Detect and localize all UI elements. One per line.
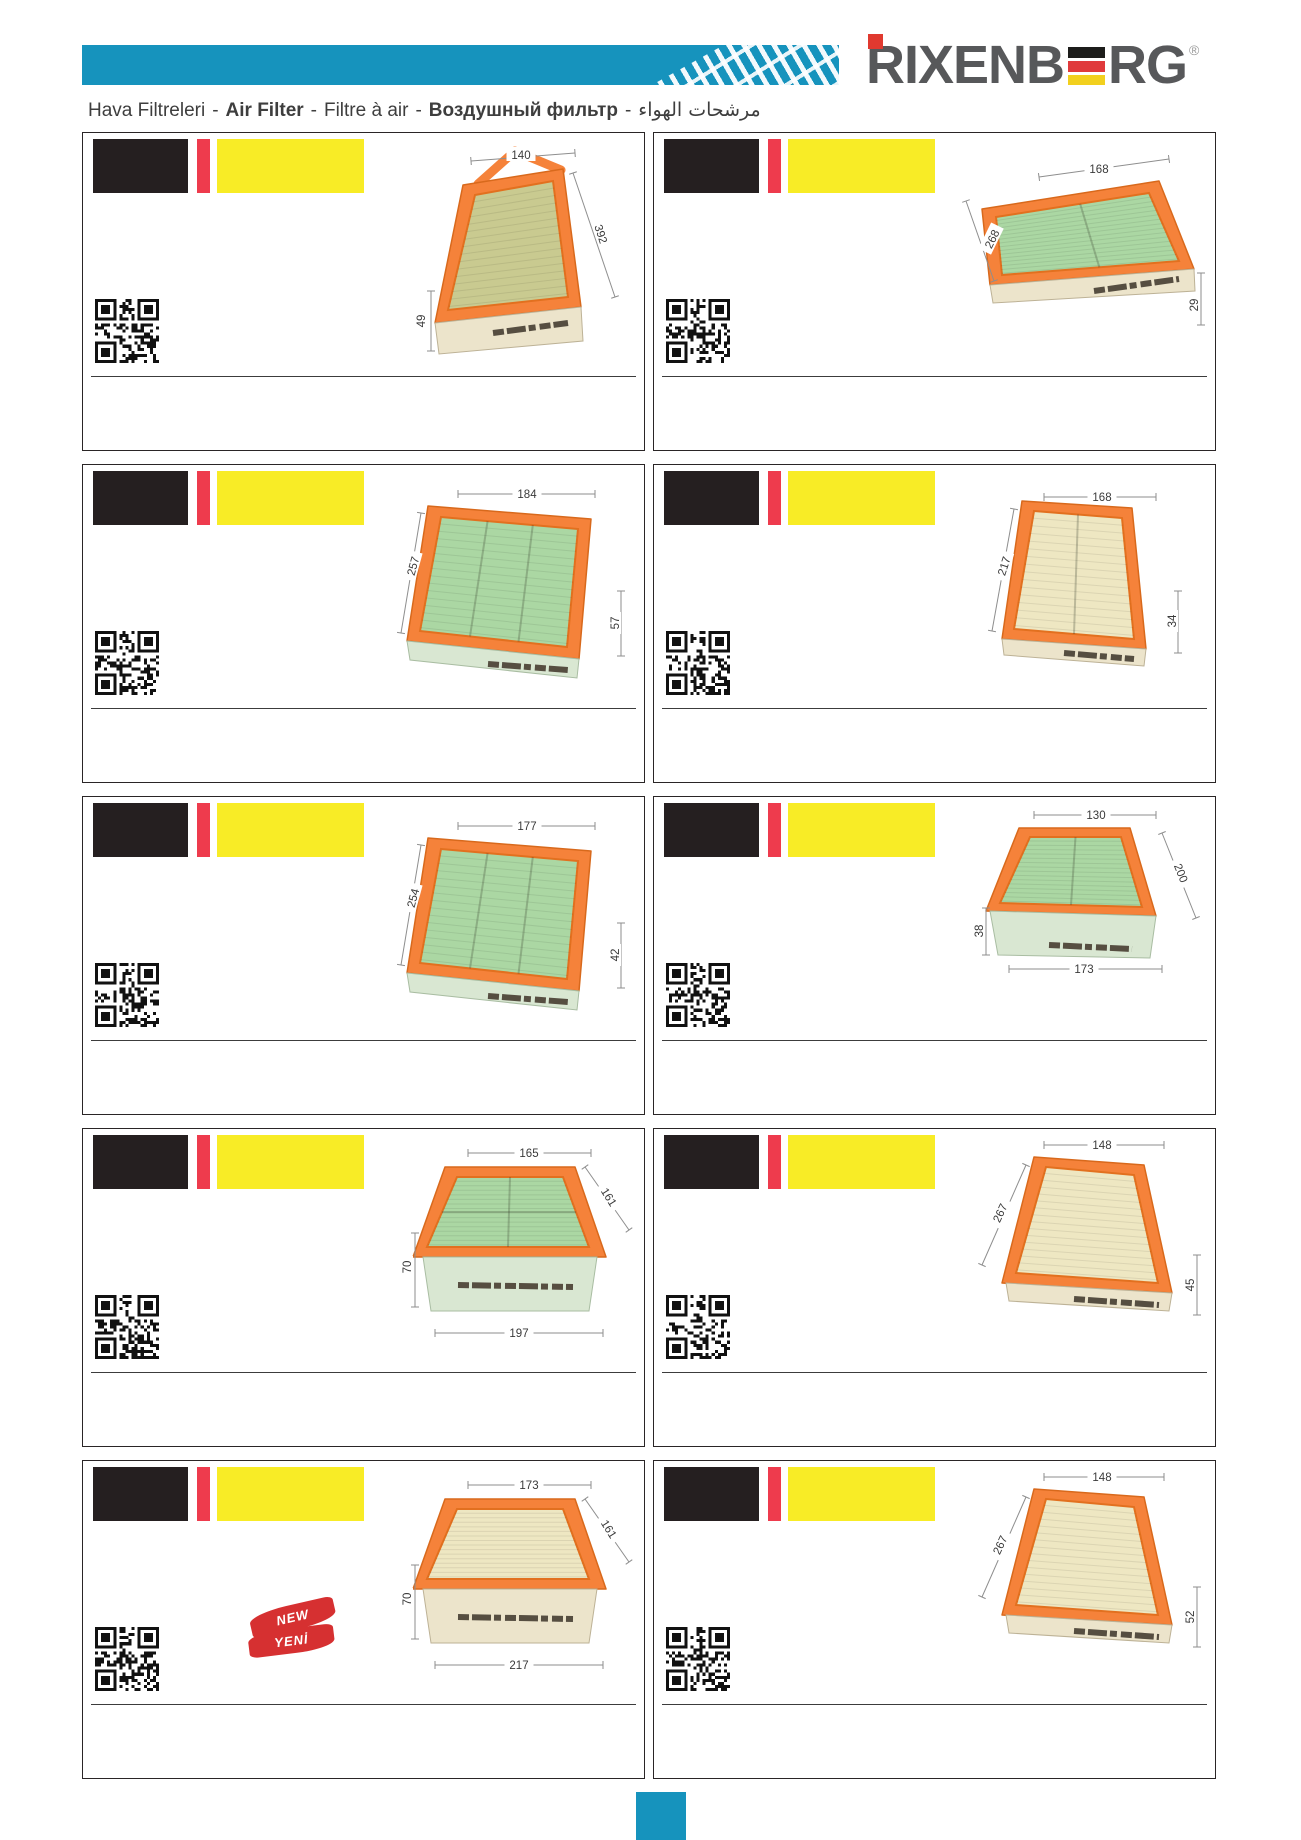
dimension-label: 34 [1164,610,1179,632]
product-code-block [93,471,188,525]
red-stripe [197,471,210,525]
product-card: 16821734 [653,464,1216,783]
qr-code-icon [95,631,159,695]
qr-code-icon [95,299,159,363]
red-stripe [197,803,210,857]
logo-text-left: RIXENB [866,38,1064,92]
dimension-label: 130 [1082,807,1111,822]
dimension-label: 200 [1169,857,1194,890]
svg-text:197: 197 [509,1328,528,1340]
dimension-label: 52 [1182,1606,1197,1628]
svg-text:177: 177 [517,821,536,833]
red-stripe [768,1135,781,1189]
svg-text:70: 70 [402,1593,414,1606]
product-code-block [93,139,188,193]
product-card: 14826752 [653,1460,1216,1779]
product-card: 16826829 [653,132,1216,451]
dimension-label: 267 [987,1528,1013,1561]
title-separator: - [415,100,421,121]
dimension-label: 173 [1070,961,1099,976]
filter-illustration: 14826745 [934,1135,1209,1370]
svg-text:70: 70 [402,1261,414,1274]
product-card: 18425757 [82,464,645,783]
filter-illustration: 14826752 [934,1467,1209,1702]
title-turkish: Hava Filtreleri [88,100,205,121]
highlight-block [788,1135,935,1189]
svg-text:52: 52 [1185,1611,1197,1624]
product-card: 17725442 [82,796,645,1115]
badge-line1: NEW [275,1606,311,1628]
header-accent-bar [82,45,839,85]
filter-illustration: 18425757 [363,471,638,706]
qr-code-icon [666,1295,730,1359]
svg-text:217: 217 [509,1660,528,1672]
highlight-block [788,803,935,857]
svg-text:34: 34 [1167,614,1179,627]
card-divider [662,376,1207,377]
dimension-label: 49 [413,310,428,332]
svg-text:148: 148 [1092,1140,1111,1152]
highlight-block [788,1467,935,1521]
card-divider [91,708,636,709]
logo-text-right: RG [1108,38,1187,92]
highlight-block [217,471,364,525]
svg-text:168: 168 [1089,164,1108,176]
product-card: 14039249 [82,132,645,451]
svg-text:173: 173 [1074,964,1093,976]
title-separator: - [212,100,218,121]
catalog-page: RIXENB RG ® Hava Filtreleri-Air Filter-F… [0,0,1301,1840]
logo-flag-e-icon [1068,47,1105,85]
new-badge: NEW YENİ [243,1598,342,1666]
dimension-label: 161 [595,1180,623,1213]
dimension-label: 38 [971,920,986,942]
filter-illustration: 13020038173 [934,803,1209,1038]
filter-base [990,911,1156,958]
dimension-label: 70 [399,1588,414,1610]
qr-code-icon [95,963,159,1027]
dimension-label: 57 [607,612,622,634]
red-stripe [768,471,781,525]
svg-text:165: 165 [519,1148,538,1160]
card-divider [662,1040,1207,1041]
red-stripe [197,139,210,193]
svg-text:29: 29 [1189,299,1201,312]
svg-text:42: 42 [610,949,622,962]
dimension-label: 161 [595,1512,623,1545]
product-card: 17316170217 NEW YENİ [82,1460,645,1779]
highlight-block [217,803,364,857]
title-arabic: مرشحات الهواء [638,99,760,121]
svg-text:140: 140 [511,150,530,162]
filter-illustration: 14039249 [363,139,638,374]
dimension-label: 197 [505,1325,534,1340]
dimension-label: 184 [513,486,542,501]
dimension-label: 177 [513,818,542,833]
red-stripe [768,139,781,193]
highlight-block [217,139,364,193]
svg-text:173: 173 [519,1480,538,1492]
filter-illustration: 16826829 [934,139,1209,374]
qr-code-icon [666,299,730,363]
product-code-block [664,1467,759,1521]
highlight-block [217,1135,364,1189]
card-divider [91,376,636,377]
product-code-block [664,803,759,857]
logo-red-square [868,34,883,49]
qr-code-icon [95,1295,159,1359]
dimension-label: 45 [1182,1274,1197,1296]
card-divider [91,1704,636,1705]
page-title: Hava Filtreleri-Air Filter-Filtre à air-… [88,99,761,122]
card-divider [91,1040,636,1041]
dimension-label: 173 [515,1477,544,1492]
svg-text:184: 184 [517,489,537,501]
red-stripe [768,1467,781,1521]
dimension-label: 148 [1088,1469,1117,1484]
qr-code-icon [666,963,730,1027]
qr-code-icon [95,1627,159,1691]
card-divider [662,1704,1207,1705]
filter-illustration: 17316170217 [363,1467,638,1702]
svg-text:38: 38 [974,925,986,938]
filter-illustration: 16516170197 [363,1135,638,1370]
svg-text:57: 57 [610,617,622,630]
product-card: 16516170197 [82,1128,645,1447]
title-separator: - [625,100,631,121]
dimension-label: 217 [505,1657,534,1672]
svg-text:49: 49 [416,315,428,328]
title-separator: - [311,100,317,121]
highlight-block [788,139,935,193]
dimension-label: 267 [987,1196,1013,1229]
qr-code-icon [666,1627,730,1691]
dimension-label: 148 [1088,1137,1117,1152]
product-code-block [664,139,759,193]
product-code-block [93,1467,188,1521]
qr-code-icon [666,631,730,695]
badge-line2: YENİ [273,1631,309,1650]
diagonal-pattern [599,45,839,85]
brand-logo: RIXENB RG ® [866,38,1199,92]
page-number-marker [636,1792,686,1840]
product-code-block [93,803,188,857]
dimension-label: 42 [607,944,622,966]
highlight-block [788,471,935,525]
product-code-block [664,471,759,525]
dimension-label: 168 [1085,161,1114,176]
filter-illustration: 17725442 [363,803,638,1038]
dimension-label: 140 [507,147,536,162]
red-stripe [197,1135,210,1189]
svg-text:148: 148 [1092,1472,1111,1484]
registered-mark: ® [1189,43,1199,57]
title-russian: Воздушный фильтр [429,100,618,121]
card-divider [662,708,1207,709]
product-code-block [664,1135,759,1189]
dimension-label: 165 [515,1145,544,1160]
product-card: 14826745 [653,1128,1216,1447]
title-english: Air Filter [226,100,304,121]
card-divider [662,1372,1207,1373]
highlight-block [217,1467,364,1521]
red-stripe [197,1467,210,1521]
product-card: 13020038173 [653,796,1216,1115]
filter-illustration: 16821734 [934,471,1209,706]
dimension-label: 168 [1088,489,1117,504]
product-grid: 14039249 16826829 18425757 16821734 1772… [82,132,1216,1779]
svg-text:45: 45 [1185,1279,1197,1292]
svg-text:130: 130 [1086,810,1105,822]
card-divider [91,1372,636,1373]
dimension-label: 29 [1186,294,1201,316]
red-stripe [768,803,781,857]
dimension-label: 70 [399,1256,414,1278]
product-code-block [93,1135,188,1189]
title-french: Filtre à air [324,100,408,121]
svg-text:168: 168 [1092,492,1111,504]
